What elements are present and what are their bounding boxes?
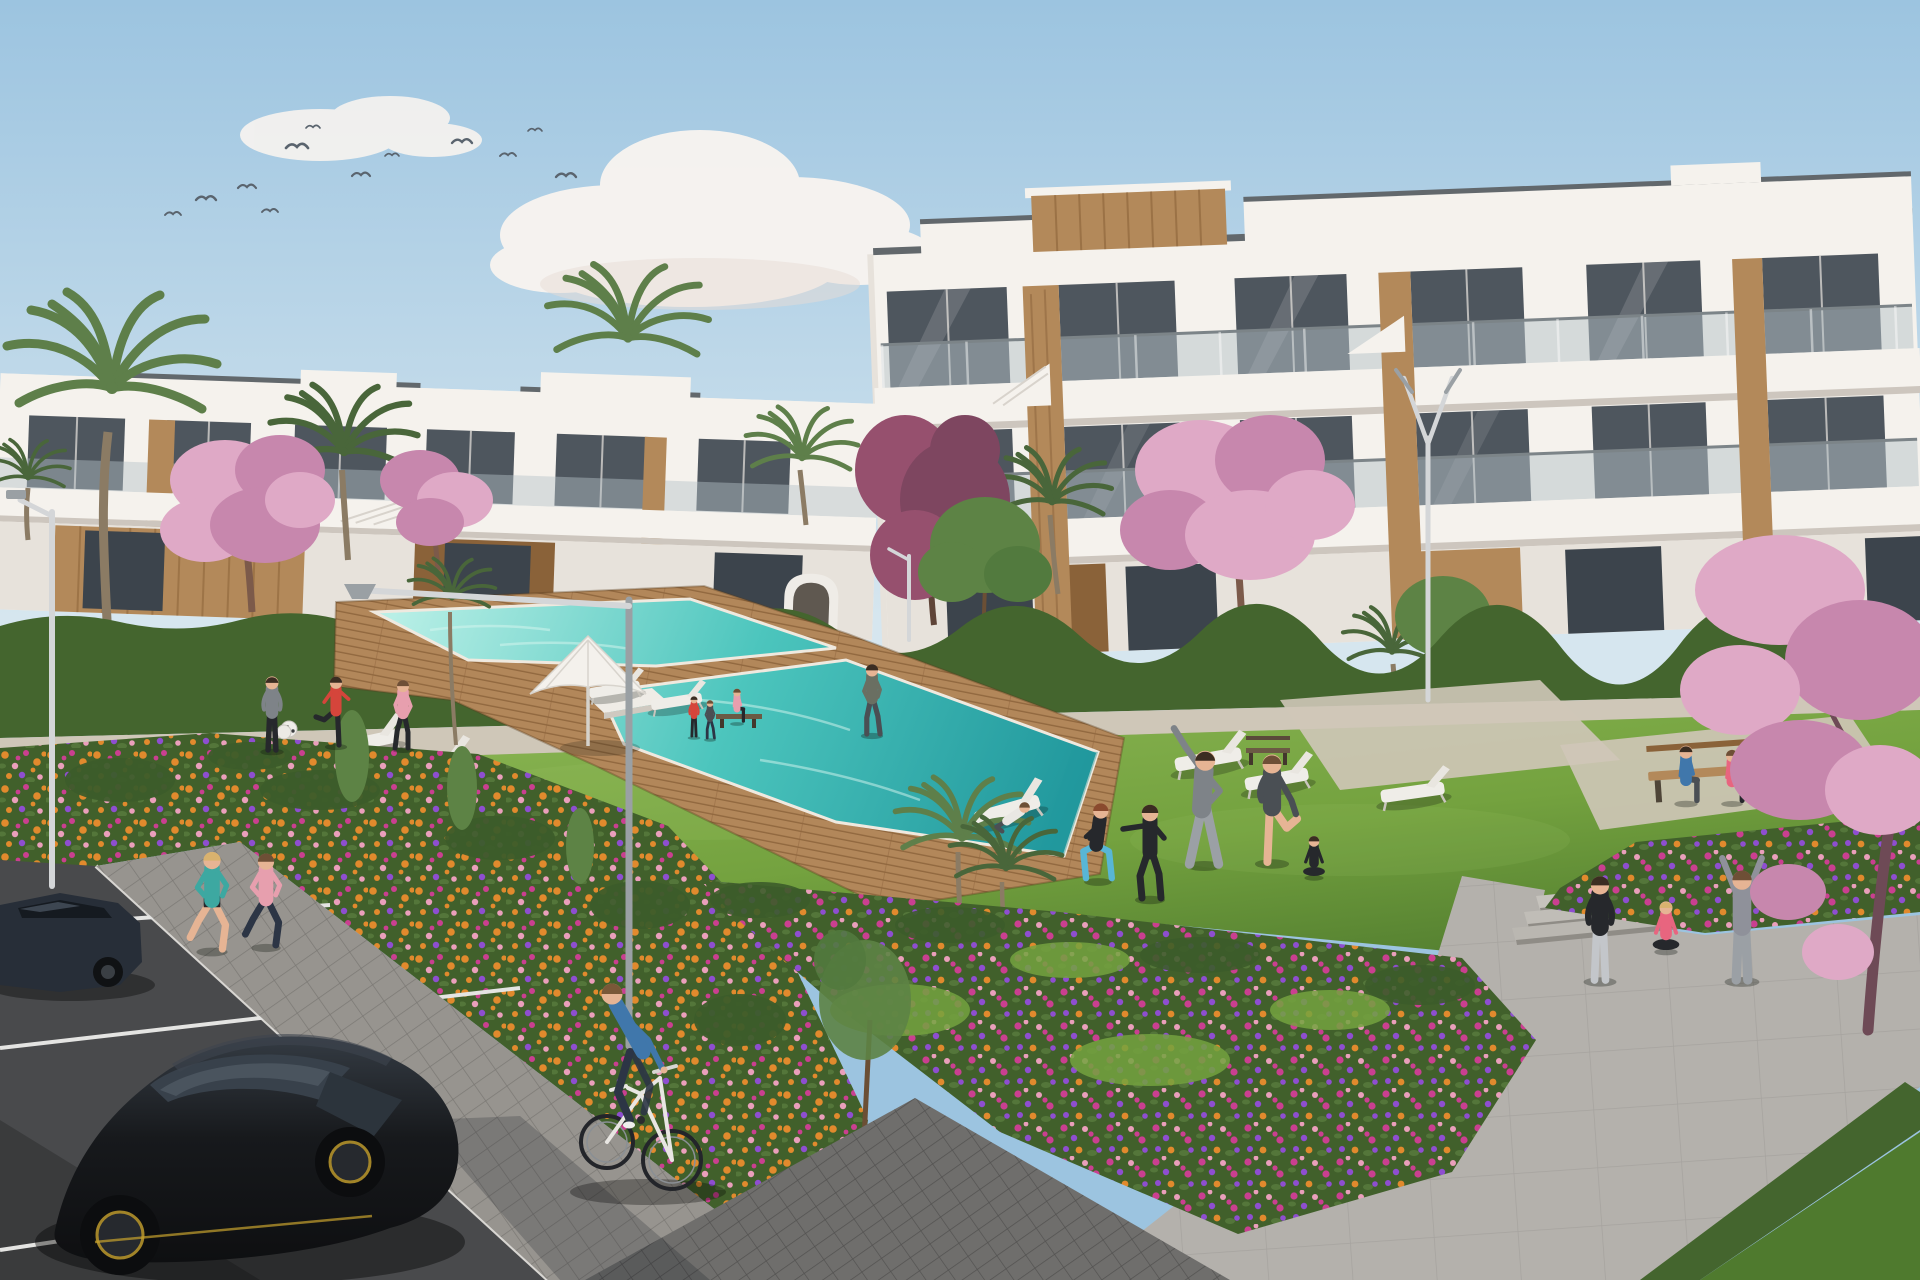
render-scene: Architectural rendering of a residential… (0, 0, 1920, 1280)
architectural-render: Architectural rendering of a residential… (0, 0, 1920, 1280)
roof-wood-box (1025, 180, 1233, 252)
